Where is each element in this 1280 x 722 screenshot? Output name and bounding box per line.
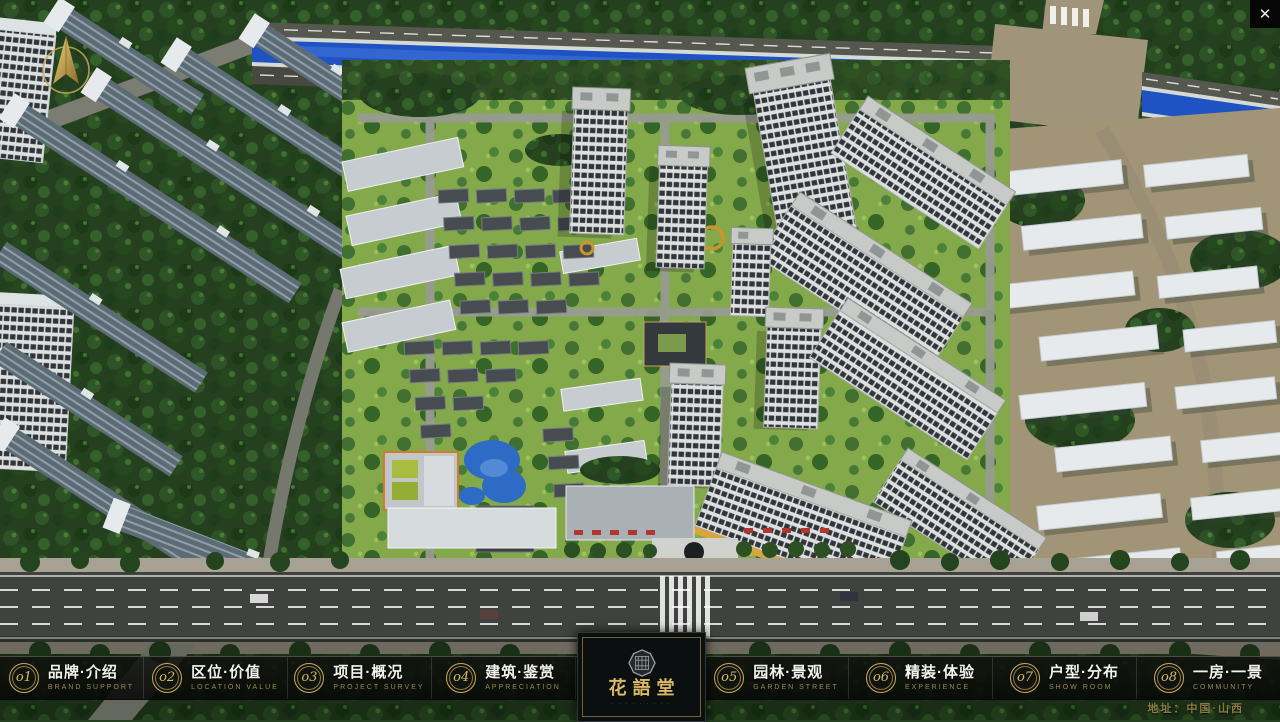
nav-number-badge: o6	[866, 663, 896, 693]
project-address: 地址：中国·山西	[1147, 700, 1244, 716]
brand-name: 花語堂	[603, 680, 681, 698]
nav-item-brand-intro[interactable]: o1 品牌·介绍BRAND SUPPORT	[0, 657, 143, 699]
nav-number-badge: o5	[714, 663, 744, 693]
nav-sublabel: BRAND SUPPORT	[48, 684, 134, 691]
nav-item-garden-landscape[interactable]: o5 园林·景观GARDEN STREET	[704, 657, 848, 699]
nav-sublabel: COMMUNITY	[1193, 684, 1254, 691]
nav-label: 建筑·鉴赏	[485, 665, 555, 682]
brand-logo-plate[interactable]: 花語堂 · · · · · · · · ·	[577, 632, 706, 722]
nav-sublabel: GARDEN STREET	[753, 684, 839, 691]
nav-number-badge: o7	[1010, 663, 1040, 693]
nav-label: 项目·概况	[333, 665, 403, 682]
nav-label: 区位·价值	[191, 665, 261, 682]
nav-item-unit-distribution[interactable]: o7 户型·分布SHOW ROOM	[992, 657, 1136, 699]
nav-number-badge: o4	[446, 663, 476, 693]
nav-number-badge: o2	[152, 663, 182, 693]
nav-item-project-survey[interactable]: o3 项目·概况PROJECT SURVEY	[287, 657, 431, 699]
nav-sublabel: APPRECIATION	[485, 684, 561, 691]
nav-item-architecture[interactable]: o4 建筑·鉴赏APPRECIATION	[431, 657, 575, 699]
nav-item-room-view[interactable]: o8 一房·一景COMMUNITY	[1136, 657, 1280, 699]
nav-label: 园林·景观	[753, 665, 823, 682]
nav-sublabel: PROJECT SURVEY	[333, 684, 424, 691]
close-button[interactable]: ✕	[1250, 0, 1280, 28]
logo-gold-frame: 花語堂 · · · · · · · · ·	[582, 637, 701, 717]
nav-sublabel: EXPERIENCE	[905, 684, 970, 691]
nav-sublabel: LOCATION VALUE	[191, 684, 279, 691]
nav-label: 品牌·介绍	[48, 665, 118, 682]
nav-sublabel: SHOW ROOM	[1049, 684, 1113, 691]
nav-label: 精装·体验	[905, 665, 975, 682]
nav-label: 户型·分布	[1049, 665, 1119, 682]
nav-item-decoration-experience[interactable]: o6 精装·体验EXPERIENCE	[848, 657, 992, 699]
nav-number-badge: o1	[9, 663, 39, 693]
seal-emblem-icon	[628, 649, 656, 677]
nav-label: 一房·一景	[1193, 665, 1263, 682]
close-icon: ✕	[1259, 5, 1272, 23]
nav-item-location-value[interactable]: o2 区位·价值LOCATION VALUE	[143, 657, 287, 699]
nav-number-badge: o3	[294, 663, 324, 693]
nav-number-badge: o8	[1154, 663, 1184, 693]
logo-subtitle: · · · · · · · · ·	[611, 702, 671, 707]
aerial-site-render	[0, 0, 1280, 720]
